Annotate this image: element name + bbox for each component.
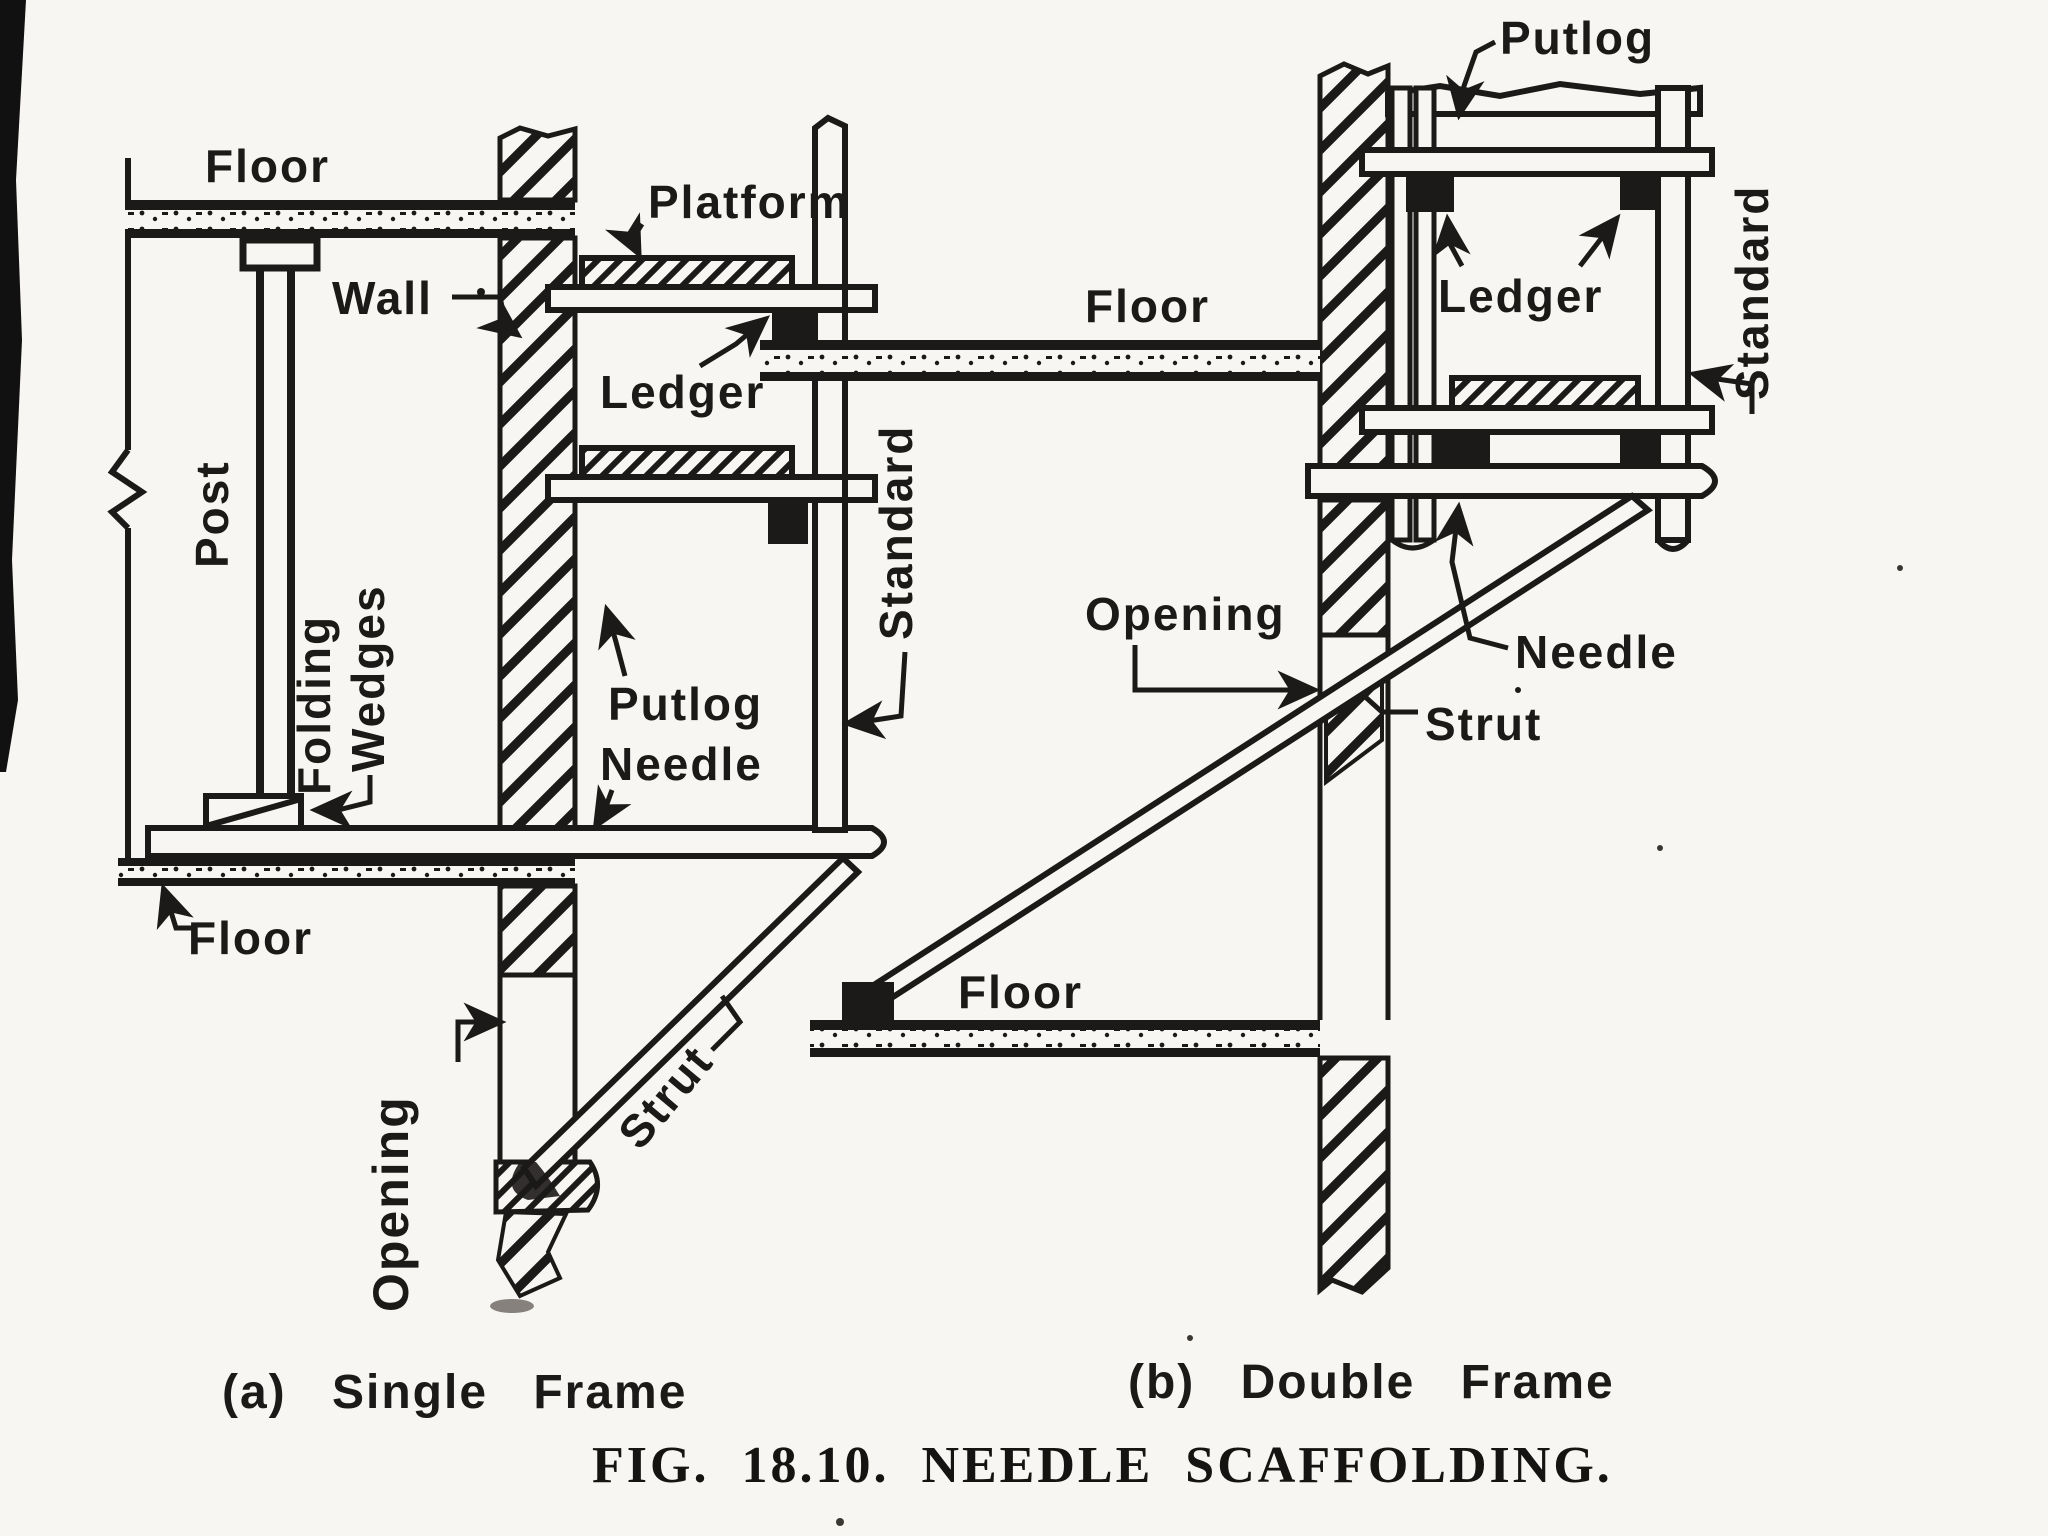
caption-single-frame: (a) Single Frame — [222, 1366, 687, 1419]
platform-2-a — [582, 448, 792, 477]
ledger-cleat-inner-upper-b — [1406, 176, 1454, 212]
strut-foot-block-b — [842, 982, 894, 1022]
label-platform-a: Platform — [648, 176, 851, 228]
needle-beam-b — [1308, 466, 1715, 496]
scan-speck — [477, 288, 485, 296]
ledger-cleat-inner-lower-b — [1436, 434, 1490, 466]
platform-b — [1452, 378, 1638, 408]
upper-floor-slab-a — [125, 200, 575, 238]
scan-speck — [836, 1518, 844, 1526]
caption-double-frame: (b) Double Frame — [1128, 1356, 1615, 1409]
label-needle-a: Needle — [600, 738, 763, 790]
label-opening-b: Opening — [1085, 588, 1286, 640]
label-floor-upper-b: Floor — [1085, 280, 1210, 332]
label-standard-a: Standard — [870, 425, 922, 640]
label-ledger-a: Ledger — [600, 366, 765, 418]
needle-beam-a — [148, 828, 884, 856]
label-needle-b: Needle — [1515, 626, 1678, 678]
label-floor-top-a: Floor — [205, 140, 330, 192]
label-strut-b: Strut — [1425, 698, 1542, 750]
label-floor-lower-b: Floor — [958, 966, 1083, 1018]
label-ledger-b: Ledger — [1438, 270, 1603, 322]
label-folding-wedges-line2-a: Wedges — [342, 584, 394, 772]
label-post-a: Post — [186, 460, 238, 568]
lower-floor-slab-b — [810, 1020, 1320, 1057]
ledger-cleat-outer-upper-b — [1620, 176, 1660, 210]
scan-speck — [1897, 565, 1903, 571]
putlog-1-end-a — [845, 287, 875, 310]
putlog-1-a — [548, 287, 845, 310]
label-putlog-a: Putlog — [608, 678, 763, 730]
scan-speck — [1515, 687, 1521, 693]
label-opening-a: Opening — [363, 1095, 419, 1312]
putlog-2-a — [548, 477, 845, 500]
needle-scaffolding-figure: Floor Wall Platform Ledger Post Folding … — [0, 0, 2048, 1536]
label-floor-bottom-a: Floor — [188, 912, 313, 964]
upper-ledger-b — [1362, 150, 1712, 174]
figure-title: FIG. 18.10. NEEDLE SCAFFOLDING. — [592, 1437, 1613, 1494]
platform-1-a — [582, 258, 792, 287]
label-folding-wedges-line1-a: Folding — [288, 615, 340, 795]
scanned-figure-page: Floor Wall Platform Ledger Post Folding … — [0, 0, 2048, 1536]
folding-wedges-a — [206, 796, 301, 828]
label-standard-b: Standard — [1726, 185, 1778, 400]
upper-floor-slab-b — [760, 340, 1320, 381]
lower-ledger-b — [1362, 408, 1712, 432]
scan-speck — [1657, 845, 1663, 851]
ledger-cleat-outer-lower-b — [1620, 434, 1658, 464]
scan-speck — [1187, 1335, 1193, 1341]
label-wall-a: Wall — [332, 272, 433, 324]
lower-floor-slab-a — [118, 858, 575, 886]
label-putlog-b: Putlog — [1500, 12, 1655, 64]
ledger-section-2-a — [768, 502, 808, 544]
